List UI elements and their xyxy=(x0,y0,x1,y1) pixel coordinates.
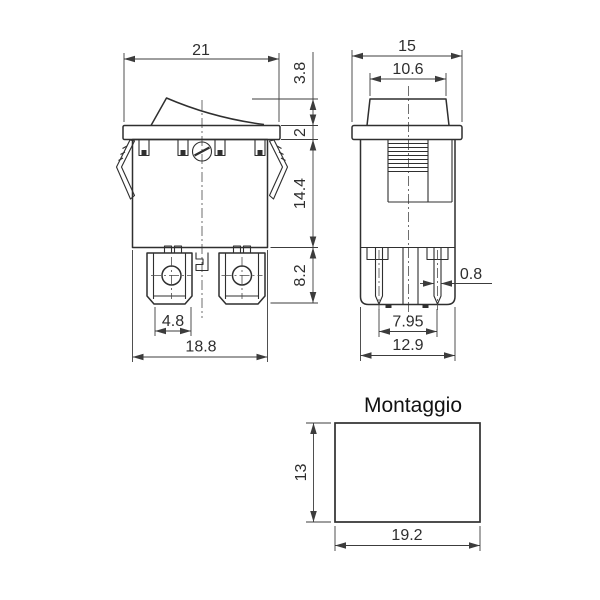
svg-text:10.6: 10.6 xyxy=(392,61,423,78)
dim-front-top-width: 21 xyxy=(124,42,279,122)
svg-text:4.8: 4.8 xyxy=(162,313,184,330)
svg-text:13: 13 xyxy=(293,464,310,482)
svg-text:19.2: 19.2 xyxy=(391,527,422,544)
svg-text:2: 2 xyxy=(292,128,309,137)
rocker-actuator xyxy=(151,98,264,126)
drawing-canvas: 21 3.8 2 14.4 8.2 4.8 xyxy=(0,0,600,600)
terminal-right xyxy=(219,246,265,304)
bezel xyxy=(123,126,280,140)
dim-cutout-height: 13 xyxy=(293,423,331,522)
svg-text:21: 21 xyxy=(192,42,210,59)
svg-text:3.8: 3.8 xyxy=(292,62,309,84)
terminal-left xyxy=(147,246,192,304)
svg-text:0.8: 0.8 xyxy=(460,266,482,283)
svg-text:7.95: 7.95 xyxy=(392,314,423,331)
mounting-cutout-rect xyxy=(335,423,480,522)
svg-text:12.9: 12.9 xyxy=(392,337,423,354)
front-view: 21 3.8 2 14.4 8.2 4.8 xyxy=(117,42,319,362)
side-view: 15 10.6 0.8 7.95 12.9 xyxy=(352,38,492,361)
svg-text:8.2: 8.2 xyxy=(292,264,309,286)
dim-pin-spacing: 7.95 xyxy=(379,309,437,337)
dim-terminal-width: 4.8 xyxy=(155,307,191,336)
ribbed-block xyxy=(388,140,452,203)
svg-text:15: 15 xyxy=(398,38,416,55)
dim-front-height-chain: 3.8 2 14.4 8.2 xyxy=(252,52,318,303)
switch-body xyxy=(133,140,268,248)
svg-text:14.4: 14.4 xyxy=(292,178,309,209)
rocker-side xyxy=(367,99,449,126)
bezel-side xyxy=(352,126,462,140)
svg-text:18.8: 18.8 xyxy=(185,339,216,356)
pin-boss-left xyxy=(367,248,388,260)
mounting-title: Montaggio xyxy=(364,394,462,417)
snap-wing-right xyxy=(270,140,288,199)
dim-rocker-width: 10.6 xyxy=(370,61,446,96)
mounting-view: Montaggio 13 19.2 xyxy=(293,394,480,551)
switch-technical-drawing: 21 3.8 2 14.4 8.2 4.8 xyxy=(0,0,600,600)
dim-cutout-width: 19.2 xyxy=(335,526,480,551)
dim-pin-thickness: 0.8 xyxy=(420,266,492,284)
